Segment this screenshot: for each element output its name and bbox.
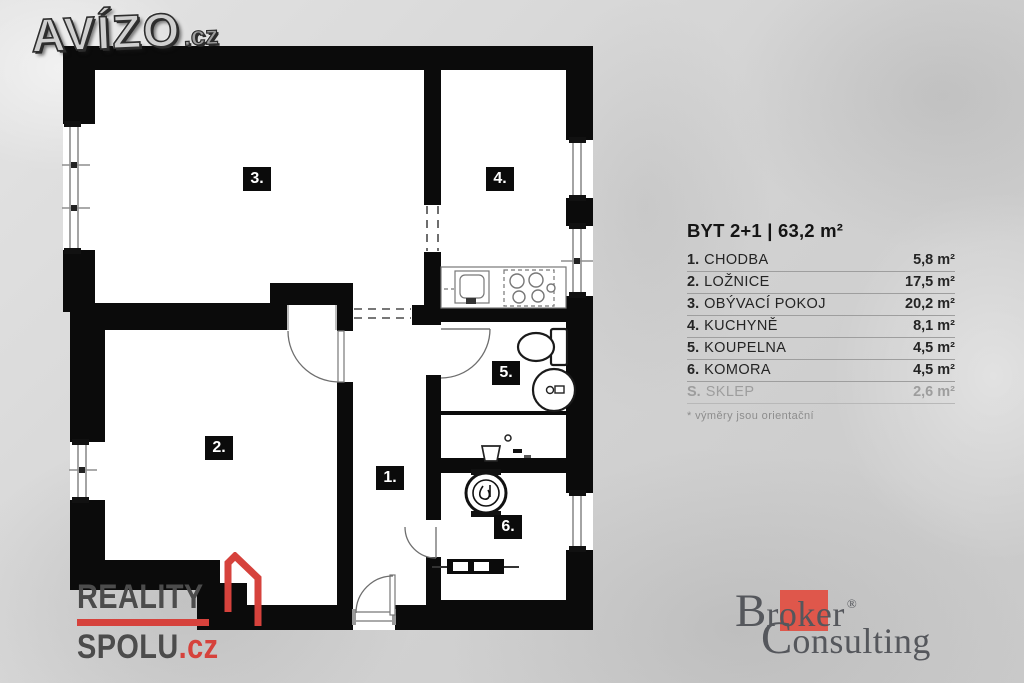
avizo-tld: .cz [183, 20, 219, 51]
registered-mark-icon: ® [847, 596, 857, 612]
spolu-tld: .cz [179, 628, 219, 666]
reality-spolu-logo: REALITY SPOLU.cz [77, 580, 243, 664]
kitchen-counter [441, 267, 566, 308]
legend-title: BYT 2+1 | 63,2 m² [687, 220, 955, 242]
reality-text: REALITY [77, 580, 219, 614]
room-label-3: 3. [243, 167, 271, 191]
legend-row-kuchyne: 4.KUCHYNĚ 8,1 m² [687, 316, 955, 338]
spolu-text: SPOLU.cz [77, 630, 219, 664]
legend-row-koupelna: 5.KOUPELNA 4,5 m² [687, 338, 955, 360]
legend-row-obyvaci-pokoj: 3.OBÝVACÍ POKOJ 20,2 m² [687, 294, 955, 316]
legend-row-chodba: 1.CHODBA 5,8 m² [687, 250, 955, 272]
legend-row-loznice: 2.LOŽNICE 17,5 m² [687, 272, 955, 294]
floor-footprint [63, 46, 593, 630]
room-label-5: 5. [492, 361, 520, 385]
legend: BYT 2+1 | 63,2 m² 1.CHODBA 5,8 m² 2.LOŽN… [687, 220, 955, 422]
broker-line2: Consulting [761, 615, 931, 662]
room-label-1: 1. [376, 466, 404, 490]
legend-row-komora: 6.KOMORA 4,5 m² [687, 360, 955, 382]
red-underline [77, 619, 209, 626]
room-label-6: 6. [494, 515, 522, 539]
avizo-wordmark: AVÍZO [30, 2, 182, 61]
room-label-4: 4. [486, 167, 514, 191]
kitchen-sink-icon [455, 271, 489, 304]
legend-note: * výměry jsou orientační [687, 410, 955, 422]
room-label-2: 2. [205, 436, 233, 460]
washbasin-icon [533, 369, 575, 411]
floorplan-flyer: 1. 2. 3. 4. 5. 6. BYT 2+1 | 63,2 m² 1.CH… [0, 0, 1024, 683]
avizo-logo: AVÍZO.cz [30, 0, 219, 63]
broker-consulting-logo: Broker® Consulting [735, 588, 965, 668]
house-icon [215, 552, 267, 634]
legend-row-sklep: S.SKLEP 2,6 m² [687, 382, 955, 404]
